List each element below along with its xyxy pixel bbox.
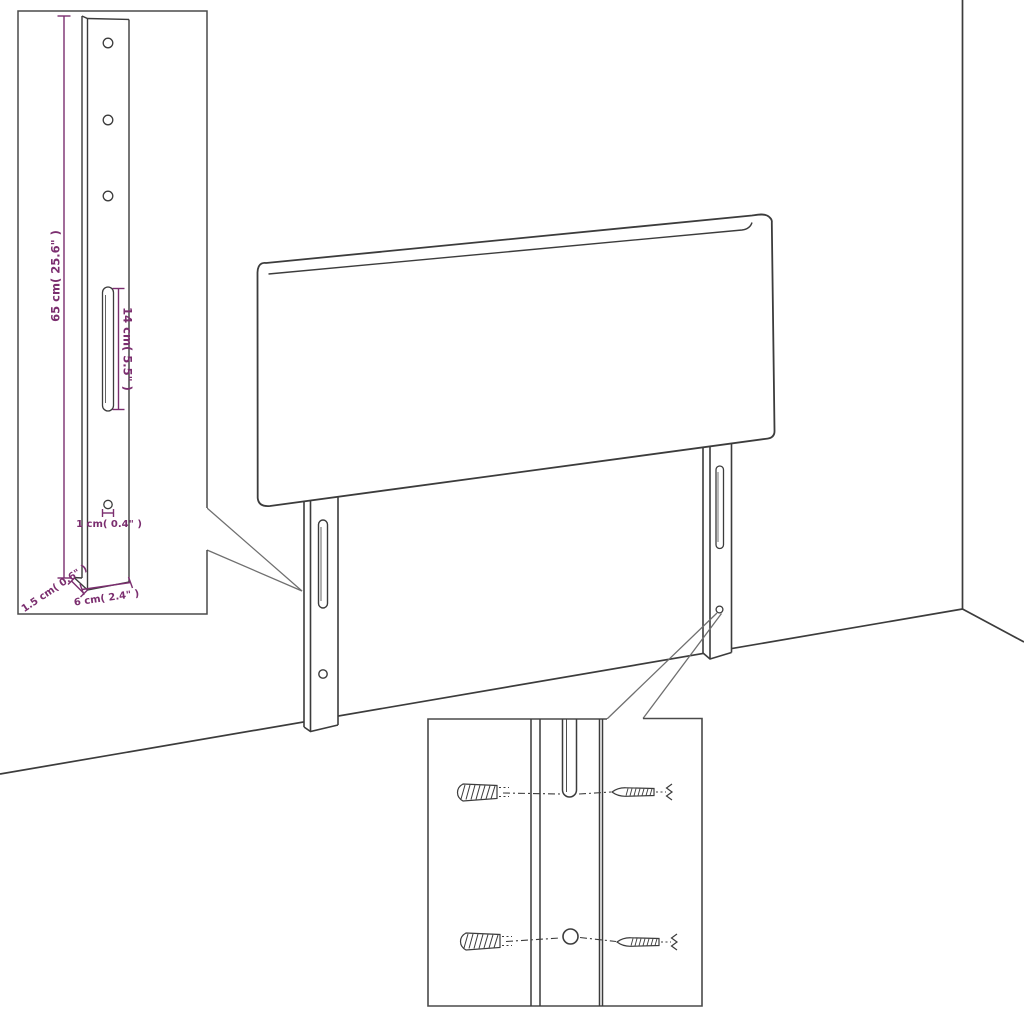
inset-mount-hole — [563, 929, 578, 944]
left-leg-hole — [319, 670, 327, 678]
inset-leg-small-hole — [104, 500, 112, 508]
diagram-canvas: 65 cm( 25.6" ) 14 cm( 5.5" ) 1 cm( 0.4" … — [0, 0, 1024, 1024]
dim-label-slot: 14 cm( 5.5" ) — [121, 307, 135, 391]
right-leg-mount-hole — [716, 606, 723, 613]
left-leg — [304, 491, 338, 732]
dim-label-hole: 1 cm( 0.4" ) — [76, 519, 142, 530]
inset-leg-detail: 65 cm( 25.6" ) 14 cm( 5.5" ) 1 cm( 0.4" … — [18, 11, 207, 615]
dim-label-height: 65 cm( 25.6" ) — [49, 230, 63, 322]
inset-leg-hole-middle — [103, 115, 113, 125]
right-leg — [703, 439, 732, 659]
right-leg-slot — [716, 466, 724, 549]
inset-mount-detail — [428, 719, 702, 1007]
inset-leg-hole-top — [103, 38, 113, 48]
headboard-diagram: 65 cm( 25.6" ) 14 cm( 5.5" ) 1 cm( 0.4" … — [0, 0, 1024, 1024]
left-leg-slot — [319, 520, 328, 608]
inset-leg-hole-lower — [103, 191, 113, 201]
inset-leg-slot — [103, 287, 114, 411]
inset-mount-detail-bg — [428, 719, 702, 1006]
